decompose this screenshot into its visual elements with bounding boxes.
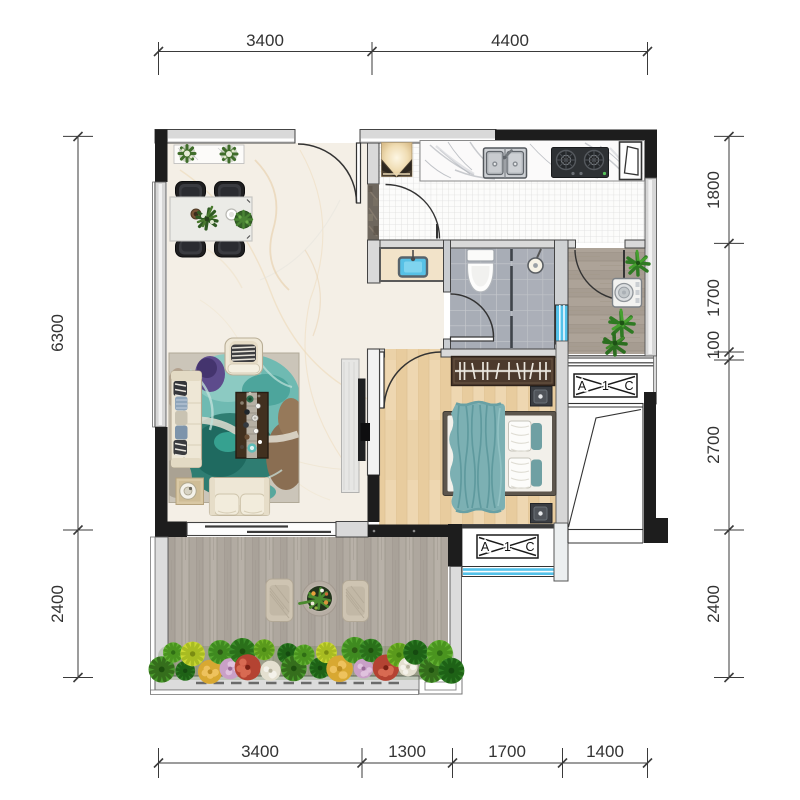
svg-text:1300: 1300: [388, 742, 426, 761]
svg-text:2700: 2700: [704, 426, 723, 464]
svg-text:100: 100: [704, 331, 723, 359]
svg-text:1: 1: [504, 540, 511, 554]
svg-text:A: A: [481, 540, 490, 554]
svg-text:A: A: [578, 379, 587, 393]
svg-text:3400: 3400: [246, 31, 284, 50]
svg-text:C: C: [525, 540, 534, 554]
svg-text:1800: 1800: [704, 171, 723, 209]
svg-text:2400: 2400: [48, 585, 67, 623]
svg-text:1: 1: [602, 379, 609, 393]
svg-text:2400: 2400: [704, 585, 723, 623]
svg-text:3400: 3400: [241, 742, 279, 761]
svg-text:6300: 6300: [48, 314, 67, 352]
svg-text:4400: 4400: [491, 31, 529, 50]
svg-text:C: C: [624, 379, 633, 393]
svg-text:1400: 1400: [586, 742, 624, 761]
svg-text:1700: 1700: [704, 279, 723, 317]
svg-text:1700: 1700: [488, 742, 526, 761]
